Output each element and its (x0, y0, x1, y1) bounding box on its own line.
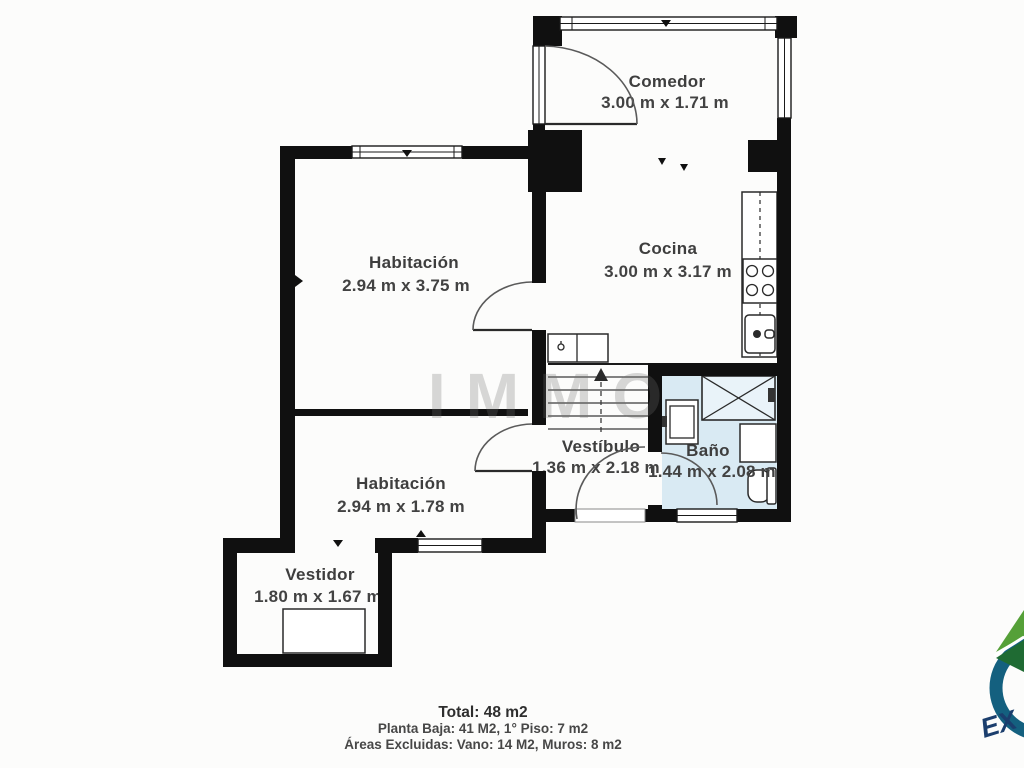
room-label-cocina: Cocina (639, 239, 698, 258)
room-dims-habitacion-1: 2.94 m x 3.75 m (342, 276, 470, 295)
bathroom-cabinet-icon (740, 424, 776, 462)
stove-icon (743, 259, 777, 303)
window-door-comedor-left (533, 46, 545, 124)
floor-plan-drawing: Comedor 3.00 m x 1.71 m Cocina 3.00 m x … (0, 0, 1024, 768)
room-dims-cocina: 3.00 m x 3.17 m (604, 262, 732, 281)
room-dims-comedor: 3.00 m x 1.71 m (601, 93, 729, 112)
window-habitacion-2 (418, 539, 482, 552)
door-comedor (545, 46, 637, 124)
summary-excluded: Áreas Excluidas: Vano: 14 M2, Muros: 8 m… (344, 737, 622, 753)
area-summary: Total: 48 m2 Planta Baja: 41 M2, 1° Piso… (344, 704, 622, 752)
door-habitacion-1 (473, 282, 532, 330)
summary-total: Total: 48 m2 (344, 704, 622, 721)
room-label-habitacion-1: Habitación (369, 253, 459, 272)
room-label-habitacion-2: Habitación (356, 474, 446, 493)
wardrobe-icon (283, 609, 365, 653)
room-dims-vestibulo: 1.36 m x 2.18 m (532, 458, 660, 477)
watermark-text: IMMO (428, 360, 682, 432)
room-dims-habitacion-2: 2.94 m x 1.78 m (337, 497, 465, 516)
window-bano (677, 509, 737, 522)
entry-doorway-sill (575, 509, 645, 522)
window-comedor-right (778, 38, 791, 118)
room-label-vestidor: Vestidor (285, 565, 355, 584)
floor-plan-page: Comedor 3.00 m x 1.71 m Cocina 3.00 m x … (0, 0, 1024, 768)
logo-text: EX (977, 704, 1022, 744)
room-label-comedor: Comedor (629, 72, 706, 91)
summary-floors: Planta Baja: 41 M2, 1° Piso: 7 m2 (344, 721, 622, 737)
agency-logo: EX (977, 610, 1024, 744)
room-dims-vestidor: 1.80 m x 1.67 m (254, 587, 382, 606)
room-label-vestibulo: Vestíbulo (562, 437, 640, 456)
utility-sink-icon (548, 334, 608, 362)
shower-icon (702, 376, 775, 420)
room-dims-bano: 1.44 m x 2.08 m (648, 462, 776, 481)
kitchen-sink-icon (745, 315, 775, 353)
room-label-bano: Baño (686, 441, 730, 460)
